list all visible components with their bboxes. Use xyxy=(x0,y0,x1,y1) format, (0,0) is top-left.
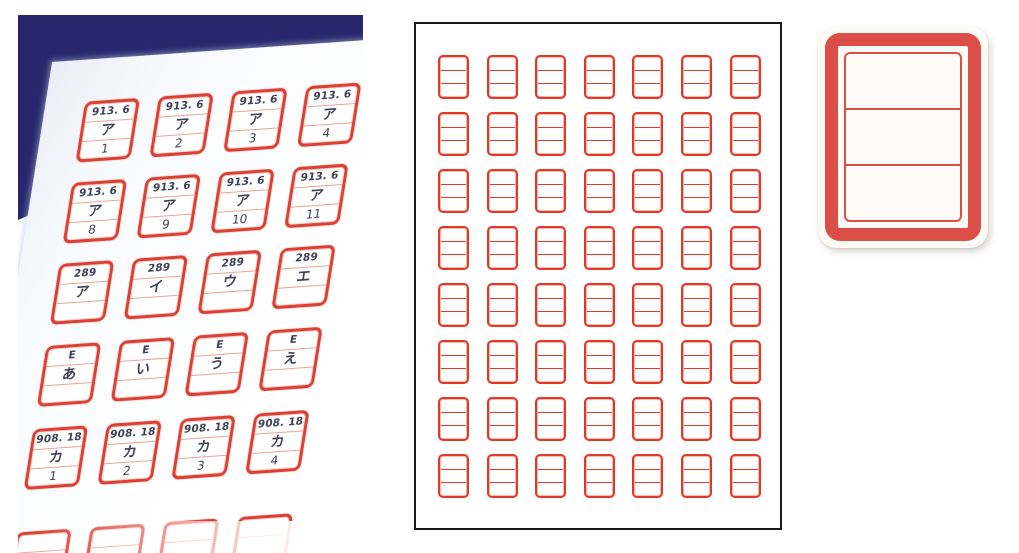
blank-label-section xyxy=(441,185,466,198)
blank-label-section xyxy=(684,185,709,198)
blank-label xyxy=(681,397,712,441)
blank-label-section xyxy=(635,369,660,381)
blank-label-section xyxy=(635,312,660,324)
blank-label-section xyxy=(587,369,612,381)
blank-label xyxy=(487,55,518,99)
printed-label: 289イ xyxy=(124,255,188,320)
blank-label-section xyxy=(587,185,612,198)
blank-label xyxy=(535,397,566,441)
blank-label-section xyxy=(490,84,515,96)
blank-label-section xyxy=(587,299,612,312)
blank-label xyxy=(438,55,469,99)
blank-label-section xyxy=(684,128,709,141)
blank-label xyxy=(487,283,518,327)
printed-label: 908. 18カ4 xyxy=(245,410,309,475)
blank-label xyxy=(535,454,566,498)
blank-label-section xyxy=(441,343,466,356)
blank-label-section xyxy=(733,115,758,128)
blank-label xyxy=(681,169,712,213)
printed-label-line3: 1 xyxy=(27,466,79,487)
blank-label-section xyxy=(684,172,709,185)
blank-label-section xyxy=(684,343,709,356)
blank-label-section xyxy=(733,470,758,483)
blank-label-section xyxy=(684,242,709,255)
blank-label-section xyxy=(733,84,758,96)
printed-label: 913. 6ア9 xyxy=(137,174,201,239)
blank-label-section xyxy=(587,141,612,153)
blank-label-section xyxy=(441,198,466,210)
blank-label-section xyxy=(635,198,660,210)
blank-label-section xyxy=(587,255,612,267)
blank-label-section xyxy=(733,369,758,381)
printed-label-line3: 11 xyxy=(288,204,340,225)
printed-label: 908. 18カ2 xyxy=(97,420,161,485)
blank-label-section xyxy=(441,312,466,324)
printed-label-line3 xyxy=(275,285,327,306)
blank-label xyxy=(681,226,712,270)
enlarged-label-sticker xyxy=(818,26,988,248)
blank-label-section xyxy=(490,58,515,71)
blank-label-section xyxy=(490,470,515,483)
blank-label-section xyxy=(587,356,612,369)
blank-label-section xyxy=(490,413,515,426)
blank-label-section xyxy=(538,286,563,299)
blank-label-section xyxy=(587,286,612,299)
enlarged-label-panel xyxy=(818,26,988,248)
printed-label: 289エ xyxy=(271,245,335,310)
printed-label-line3: 3 xyxy=(175,455,227,476)
blank-label-section xyxy=(733,413,758,426)
blank-label-section xyxy=(538,343,563,356)
blank-label xyxy=(632,454,663,498)
blank-label-section xyxy=(538,141,563,153)
blank-label-section xyxy=(684,115,709,128)
blank-label xyxy=(730,454,761,498)
printed-label-line3: 2 xyxy=(153,133,205,154)
printed-label: Eう xyxy=(184,332,248,397)
printed-label: 913. 6ア10 xyxy=(210,169,274,234)
printed-label: Eえ xyxy=(258,327,322,392)
blank-label-section xyxy=(635,172,660,185)
blank-label-section xyxy=(538,128,563,141)
printed-label: 913. 6ア8 xyxy=(63,179,127,244)
blank-label-section xyxy=(490,483,515,495)
blank-label xyxy=(438,454,469,498)
blank-label-section xyxy=(635,255,660,267)
enlarged-label-section-middle xyxy=(846,110,960,166)
blank-label-section xyxy=(441,229,466,242)
printed-sheet-photo: 913. 6ア1913. 6ア2913. 6ア3913. 6ア4913. 6ア8… xyxy=(18,15,363,553)
blank-label-section xyxy=(684,198,709,210)
blank-label-section xyxy=(538,172,563,185)
blank-label-section xyxy=(635,185,660,198)
blank-label-section xyxy=(587,470,612,483)
blank-label-section xyxy=(490,312,515,324)
printed-label xyxy=(81,524,145,553)
printed-label: Eあ xyxy=(37,342,101,407)
blank-label-section xyxy=(490,356,515,369)
blank-label xyxy=(487,397,518,441)
blank-label-section xyxy=(684,229,709,242)
blank-label-section xyxy=(441,71,466,84)
blank-label-section xyxy=(635,457,660,470)
blank-label-section xyxy=(635,343,660,356)
printed-label-line3 xyxy=(188,372,240,393)
blank-sheet-diagram xyxy=(414,22,782,530)
blank-label-section xyxy=(733,229,758,242)
printed-label-grid: 913. 6ア1913. 6ア2913. 6ア3913. 6ア4913. 6ア8… xyxy=(18,81,363,553)
printed-label: Eい xyxy=(111,337,175,402)
blank-label xyxy=(535,226,566,270)
blank-label-section xyxy=(733,71,758,84)
blank-label-section xyxy=(441,483,466,495)
blank-label xyxy=(730,169,761,213)
blank-label xyxy=(438,112,469,156)
blank-label xyxy=(730,55,761,99)
blank-label-section xyxy=(441,255,466,267)
printed-label-line3 xyxy=(201,290,253,311)
blank-label-section xyxy=(635,115,660,128)
blank-label-section xyxy=(538,426,563,438)
blank-label xyxy=(535,283,566,327)
printed-label-line3: 1 xyxy=(79,138,131,159)
blank-label-section xyxy=(538,369,563,381)
blank-label-section xyxy=(635,470,660,483)
blank-label-section xyxy=(441,457,466,470)
blank-label-section xyxy=(733,128,758,141)
blank-label-section xyxy=(538,356,563,369)
printed-label: 908. 18カ1 xyxy=(24,425,88,490)
blank-label-section xyxy=(684,369,709,381)
blank-label-section xyxy=(635,400,660,413)
blank-label xyxy=(438,169,469,213)
blank-label-section xyxy=(490,400,515,413)
printed-label: 289ア xyxy=(50,260,114,325)
printed-label-line3: 3 xyxy=(227,128,279,149)
blank-label xyxy=(487,454,518,498)
blank-label-section xyxy=(684,312,709,324)
blank-label-section xyxy=(635,286,660,299)
blank-label-section xyxy=(490,299,515,312)
blank-label xyxy=(584,454,615,498)
blank-label xyxy=(584,283,615,327)
blank-label xyxy=(730,397,761,441)
blank-label-section xyxy=(441,413,466,426)
blank-label-section xyxy=(587,312,612,324)
printed-label: 913. 6ア4 xyxy=(297,82,361,147)
printed-label-line3 xyxy=(127,295,179,316)
blank-label xyxy=(584,340,615,384)
blank-label-section xyxy=(587,413,612,426)
blank-label-section xyxy=(684,286,709,299)
blank-label-section xyxy=(733,457,758,470)
printed-label-line3 xyxy=(114,377,166,398)
blank-label-section xyxy=(490,128,515,141)
blank-label-section xyxy=(733,286,758,299)
blank-label xyxy=(438,226,469,270)
blank-label-section xyxy=(587,400,612,413)
blank-label-section xyxy=(733,343,758,356)
printed-label-line3 xyxy=(53,301,105,322)
blank-label-section xyxy=(733,58,758,71)
blank-label-section xyxy=(587,71,612,84)
blank-label-section xyxy=(441,128,466,141)
blank-label xyxy=(438,397,469,441)
blank-label xyxy=(487,340,518,384)
blank-label-section xyxy=(538,115,563,128)
blank-label-section xyxy=(587,229,612,242)
blank-label-section xyxy=(733,185,758,198)
blank-label-section xyxy=(587,84,612,96)
blank-label xyxy=(730,283,761,327)
blank-label-section xyxy=(490,242,515,255)
blank-label-section xyxy=(733,141,758,153)
enlarged-label-section-top xyxy=(846,54,960,110)
blank-label-section xyxy=(733,426,758,438)
blank-label-section xyxy=(684,255,709,267)
enlarged-label-inner-frame xyxy=(844,52,962,222)
blank-label-section xyxy=(635,229,660,242)
blank-label-section xyxy=(733,299,758,312)
blank-label xyxy=(632,55,663,99)
blank-label-section xyxy=(587,242,612,255)
blank-label-section xyxy=(733,483,758,495)
blank-label xyxy=(681,55,712,99)
blank-label-section xyxy=(441,58,466,71)
blank-label-section xyxy=(441,299,466,312)
blank-label xyxy=(632,283,663,327)
blank-label-section xyxy=(490,343,515,356)
blank-label-section xyxy=(684,58,709,71)
blank-label-section xyxy=(441,470,466,483)
printed-label-line3 xyxy=(262,367,314,388)
blank-label xyxy=(487,112,518,156)
blank-label-section xyxy=(490,426,515,438)
blank-label xyxy=(438,340,469,384)
blank-label-section xyxy=(490,141,515,153)
printed-label xyxy=(155,518,219,553)
blank-label-section xyxy=(587,426,612,438)
blank-label-section xyxy=(441,369,466,381)
blank-label xyxy=(584,112,615,156)
blank-label-section xyxy=(490,185,515,198)
blank-label xyxy=(681,340,712,384)
blank-label-section xyxy=(538,413,563,426)
printed-label-line3: 10 xyxy=(214,209,266,230)
enlarged-label-section-bottom xyxy=(846,166,960,220)
blank-label xyxy=(632,397,663,441)
blank-label-section xyxy=(441,84,466,96)
blank-label-section xyxy=(538,242,563,255)
blank-label xyxy=(535,112,566,156)
blank-label xyxy=(535,55,566,99)
blank-label-section xyxy=(684,457,709,470)
blank-label-section xyxy=(538,71,563,84)
printed-label xyxy=(229,513,293,553)
printed-label: 913. 6ア11 xyxy=(284,164,348,229)
blank-label-section xyxy=(538,58,563,71)
printed-label-line3: 9 xyxy=(140,214,192,235)
printed-label-sheet: 913. 6ア1913. 6ア2913. 6ア3913. 6ア4913. 6ア8… xyxy=(18,29,363,553)
printed-label: 913. 6ア3 xyxy=(223,88,287,153)
blank-label-section xyxy=(441,115,466,128)
blank-label xyxy=(584,397,615,441)
blank-label-section xyxy=(441,172,466,185)
printed-label-line3: 4 xyxy=(249,450,301,471)
blank-label xyxy=(535,169,566,213)
blank-label-section xyxy=(733,400,758,413)
blank-label-section xyxy=(635,426,660,438)
blank-label-section xyxy=(538,299,563,312)
label-product-illustration: 913. 6ア1913. 6ア2913. 6ア3913. 6ア4913. 6ア8… xyxy=(0,0,1019,553)
blank-label-section xyxy=(538,400,563,413)
blank-label xyxy=(681,283,712,327)
blank-label-section xyxy=(441,141,466,153)
blank-label xyxy=(730,340,761,384)
blank-label-section xyxy=(441,286,466,299)
blank-label xyxy=(632,226,663,270)
blank-label-section xyxy=(490,255,515,267)
printed-label-line3: 2 xyxy=(101,461,153,482)
printed-label-line3: 8 xyxy=(66,219,118,240)
blank-label xyxy=(584,55,615,99)
blank-label-section xyxy=(733,312,758,324)
blank-label-section xyxy=(490,457,515,470)
blank-label-section xyxy=(490,229,515,242)
blank-label xyxy=(487,226,518,270)
blank-label xyxy=(438,283,469,327)
blank-label-section xyxy=(684,84,709,96)
blank-label-section xyxy=(441,426,466,438)
blank-label-section xyxy=(635,356,660,369)
printed-label xyxy=(18,529,72,553)
blank-label xyxy=(681,454,712,498)
blank-label-section xyxy=(733,356,758,369)
blank-label-section xyxy=(490,115,515,128)
blank-label xyxy=(681,112,712,156)
printed-label: 908. 18カ3 xyxy=(171,415,235,480)
printed-label: 913. 6ア1 xyxy=(76,98,140,163)
blank-label-section xyxy=(490,198,515,210)
blank-label-section xyxy=(441,242,466,255)
blank-label-section xyxy=(635,483,660,495)
blank-label-section xyxy=(538,255,563,267)
blank-label-section xyxy=(684,299,709,312)
blank-label-section xyxy=(538,198,563,210)
blank-label-section xyxy=(441,356,466,369)
blank-label xyxy=(632,340,663,384)
blank-label-section xyxy=(538,229,563,242)
blank-label xyxy=(632,169,663,213)
blank-label-section xyxy=(684,141,709,153)
blank-label-section xyxy=(538,457,563,470)
blank-label-section xyxy=(684,483,709,495)
blank-label-section xyxy=(684,400,709,413)
blank-label-section xyxy=(490,369,515,381)
blank-label-section xyxy=(538,312,563,324)
printed-label-line2 xyxy=(235,535,287,553)
blank-label-section xyxy=(635,58,660,71)
blank-label-section xyxy=(733,242,758,255)
blank-label-section xyxy=(635,242,660,255)
blank-label-section xyxy=(587,483,612,495)
blank-label xyxy=(584,226,615,270)
blank-label-section xyxy=(684,356,709,369)
blank-label-section xyxy=(684,426,709,438)
blank-label-section xyxy=(538,185,563,198)
blank-label xyxy=(535,340,566,384)
blank-label-section xyxy=(587,128,612,141)
blank-label-section xyxy=(587,58,612,71)
blank-label-section xyxy=(490,286,515,299)
blank-label-section xyxy=(635,299,660,312)
blank-label-section xyxy=(538,84,563,96)
blank-label-section xyxy=(684,71,709,84)
blank-label xyxy=(487,169,518,213)
printed-label: 913. 6ア2 xyxy=(149,93,213,158)
blank-label-section xyxy=(587,343,612,356)
blank-label-section xyxy=(538,470,563,483)
blank-label-section xyxy=(490,71,515,84)
blank-label-section xyxy=(635,413,660,426)
blank-label-section xyxy=(684,470,709,483)
blank-label xyxy=(632,112,663,156)
blank-label xyxy=(584,169,615,213)
blank-label xyxy=(730,112,761,156)
blank-label-section xyxy=(684,413,709,426)
blank-label-section xyxy=(441,400,466,413)
printed-label: 289ウ xyxy=(197,250,261,315)
blank-label-section xyxy=(733,255,758,267)
blank-label-section xyxy=(733,198,758,210)
blank-label xyxy=(730,226,761,270)
blank-label-section xyxy=(635,128,660,141)
blank-label-section xyxy=(587,198,612,210)
blank-label-section xyxy=(587,115,612,128)
blank-label-section xyxy=(587,172,612,185)
blank-label-section xyxy=(635,71,660,84)
blank-label-section xyxy=(587,457,612,470)
blank-label-section xyxy=(538,483,563,495)
blank-label-section xyxy=(490,172,515,185)
printed-label-line3: 4 xyxy=(300,123,352,144)
blank-label-section xyxy=(635,84,660,96)
blank-label-section xyxy=(733,172,758,185)
blank-label-section xyxy=(635,141,660,153)
printed-label-line3 xyxy=(40,383,92,404)
